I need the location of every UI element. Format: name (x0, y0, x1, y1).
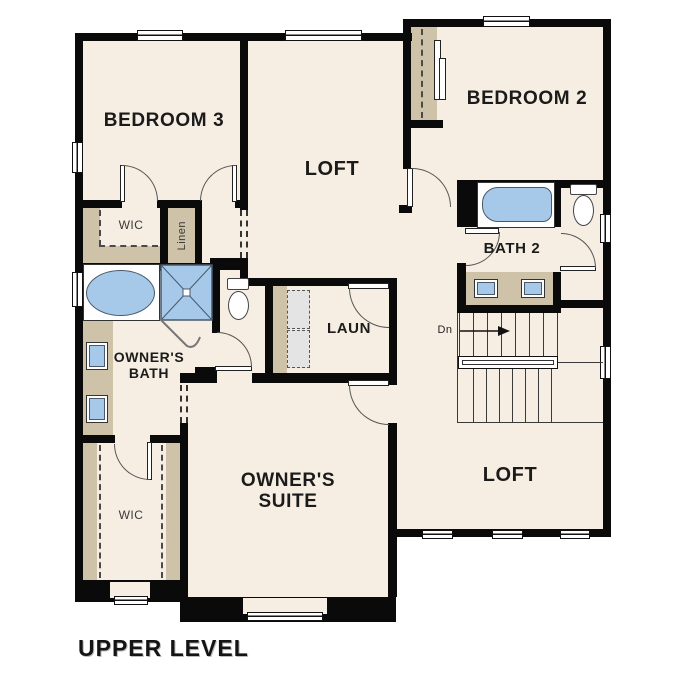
toilet-tank-bath2 (570, 184, 597, 195)
toilet-icon-bath2 (573, 195, 594, 226)
wall-suite-loft-divider (388, 423, 397, 597)
toilet-icon-owners (228, 291, 249, 320)
closet-rod-wic-lower-left (99, 445, 101, 578)
laundry-counter (273, 286, 287, 373)
wall-loft-left (240, 33, 248, 210)
tub-icon-bath2 (482, 187, 552, 222)
sink-owners-1 (86, 342, 108, 370)
wic-lower-shelf-left (83, 443, 97, 580)
wall-bedroom2-closet-bottom (403, 120, 443, 128)
washer-icon (287, 290, 310, 329)
window-wic-bay (114, 596, 148, 605)
window-suite-bay (247, 612, 323, 621)
plan-title: UPPER LEVEL (78, 635, 249, 662)
wall-bath2-left-lower (457, 263, 466, 308)
wic-upper-shelf-bottom (83, 246, 160, 263)
window-loft-top (285, 30, 362, 41)
toilet-tank-owners (227, 278, 249, 290)
bypass-door-2 (439, 58, 446, 100)
stairs-down-label: Dn (432, 324, 458, 336)
room-label-owners-suite: OWNER'S SUITE (226, 470, 350, 513)
window-bath2-right (600, 214, 611, 243)
wall-laundry-right (389, 278, 397, 385)
window-bedroom2-top (483, 16, 530, 27)
wall-wc-left (212, 265, 220, 333)
closet-rod-bedroom2-closet (421, 29, 423, 118)
wall-linen-right (195, 200, 202, 266)
wall-bedroom2-left (403, 128, 411, 169)
exterior-wall-left (75, 33, 83, 582)
stair-treads-lower (473, 369, 553, 422)
floor-plan: BEDROOM 3 LOFT BEDROOM 2 WIC Linen OWNER… (0, 0, 687, 687)
wall-stair-top-right (553, 300, 611, 308)
window-loft-bottom-3 (560, 530, 590, 539)
wall-bedroom3-bottom-a (75, 200, 122, 208)
down-arrow-icon (460, 324, 510, 338)
stair-handrail (458, 356, 558, 369)
stair-edge-bottom (457, 422, 603, 423)
wall-wic-linen-divider (160, 200, 168, 266)
closet-rod-wic-lower-right (161, 445, 163, 578)
linen-text: Linen (176, 221, 188, 250)
room-label-bedroom3: BEDROOM 3 (103, 110, 225, 131)
room-label-loft-lower: LOFT (474, 464, 546, 486)
wic-lower-shelf-right (166, 443, 180, 580)
shower-icon (160, 264, 213, 321)
oval-tub-icon (86, 270, 155, 316)
window-bedroom3-left (72, 142, 83, 173)
room-label-bath2: BATH 2 (480, 241, 544, 258)
floor-owners-suite-lower (188, 529, 390, 599)
room-label-loft-upper: LOFT (296, 158, 368, 180)
wall-stair-top-left (457, 305, 561, 313)
window-owners-bath-left (72, 272, 83, 307)
room-label-wic-upper: WIC (112, 218, 150, 232)
wall-wc-right (265, 278, 273, 377)
stair-rail-line (558, 362, 603, 363)
wall-suite-opening-stub (180, 423, 188, 437)
sink-bath2-1 (474, 279, 498, 298)
room-label-linen: Linen (168, 209, 195, 262)
sink-owners-2 (86, 395, 108, 423)
wall-wic-lower-top-a (75, 435, 115, 443)
exterior-wall-right (603, 19, 611, 537)
room-label-bedroom2: BEDROOM 2 (464, 88, 590, 109)
cased-opening-bedroom3-hall (240, 210, 248, 258)
room-label-owners-bath: OWNER'S BATH (106, 350, 192, 381)
room-label-laundry: LAUN (323, 321, 375, 338)
window-bedroom3-top (137, 30, 183, 41)
cased-opening-suite-bath (180, 385, 188, 423)
window-loft-bottom-1 (422, 530, 453, 539)
room-label-wic-lower: WIC (112, 508, 150, 522)
closet-rod-wic-upper-bottom (99, 245, 158, 247)
closet-rod-wic-upper (99, 210, 101, 246)
window-loft-bottom-2 (492, 530, 523, 539)
sink-bath2-2 (521, 279, 545, 298)
dryer-icon (287, 330, 310, 368)
wall-wic-suite-divider (180, 435, 188, 597)
wall-closet-left (403, 19, 411, 129)
